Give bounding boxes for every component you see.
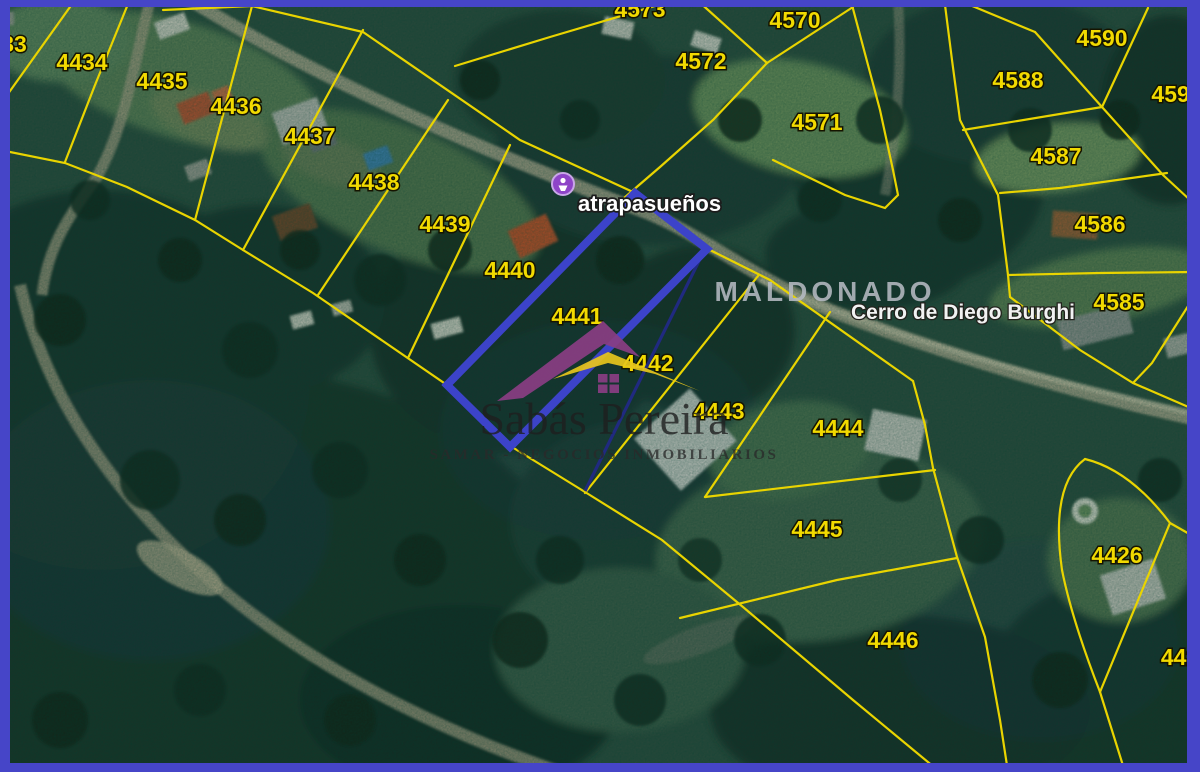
- parcel-label-4572: 4572: [675, 48, 726, 74]
- parcel-label-4434: 4434: [56, 49, 107, 75]
- parcel-label-4571: 4571: [791, 109, 842, 135]
- parcel-label-4435: 4435: [136, 68, 187, 94]
- place-pin[interactable]: [552, 173, 574, 195]
- parcel-label-4445: 4445: [791, 516, 842, 542]
- parcel-label-4587: 4587: [1030, 143, 1081, 169]
- pin-place-name: atrapasueños: [578, 191, 721, 216]
- parcel-label-4441: 4441: [551, 303, 602, 329]
- watermark-tagline: SAMAR - NEGOCIOS INMOBILIARIOS: [430, 447, 779, 463]
- parcel-label-4436: 4436: [210, 93, 261, 119]
- parcel-label-4570: 4570: [769, 7, 820, 33]
- listing-map-image: 3344344435443644374438443944404441444244…: [0, 0, 1200, 772]
- parcel-label-4426: 4426: [1091, 542, 1142, 568]
- parcel-label-4446: 4446: [867, 627, 918, 653]
- street-label: Cerro de Diego Burghi: [851, 301, 1075, 324]
- parcel-label-4586: 4586: [1074, 211, 1125, 237]
- place-pin-icon[interactable]: [552, 173, 574, 195]
- parcel-label-4585: 4585: [1093, 289, 1144, 315]
- parcel-label-4590: 4590: [1076, 25, 1127, 51]
- parcel-label-4440: 4440: [484, 257, 535, 283]
- parcel-label-4437: 4437: [284, 123, 335, 149]
- parcel-label-4588: 4588: [992, 67, 1043, 93]
- pin-glyph: [560, 178, 565, 183]
- watermark-brand: Sabás Pereira: [479, 393, 728, 444]
- parcel-label-4444: 4444: [812, 415, 863, 441]
- parcel-label-4439: 4439: [419, 211, 470, 237]
- map-canvas[interactable]: 3344344435443644374438443944404441444244…: [0, 0, 1200, 772]
- parcel-label-4438: 4438: [348, 169, 399, 195]
